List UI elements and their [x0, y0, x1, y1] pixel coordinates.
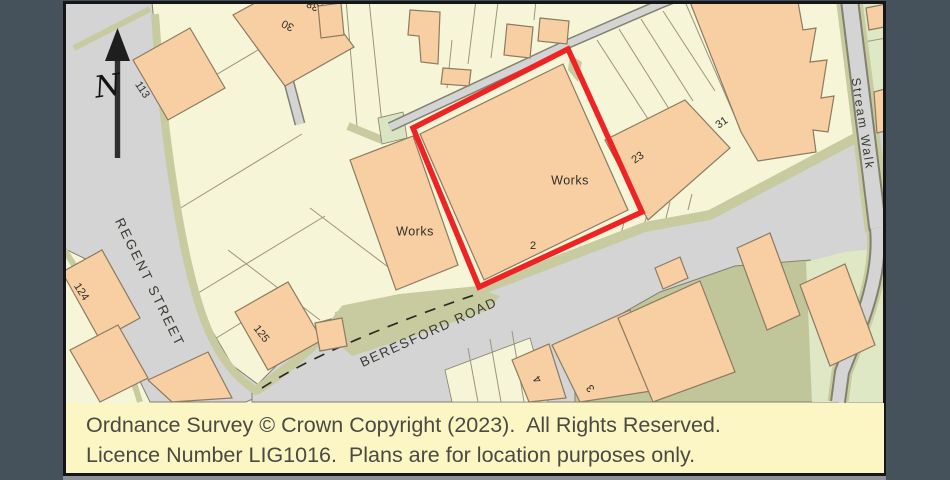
label-site-number: 2: [530, 240, 536, 252]
label-works-left: Works: [396, 224, 434, 238]
label-works-site: Works: [551, 173, 589, 187]
building-top-5: [538, 18, 569, 44]
page: N REGENT STREET BERESFORD ROAD Stream Wa…: [0, 0, 950, 480]
copyright-line-1: Ordnance Survey © Crown Copyright (2023)…: [86, 410, 884, 440]
copyright-notice: Ordnance Survey © Crown Copyright (2023)…: [66, 403, 884, 473]
building-top-1: [318, 3, 344, 38]
copyright-line-2: Licence Number LIG1016. Plans are for lo…: [86, 440, 884, 470]
building-top-3: [441, 68, 471, 86]
building-125-annex: [315, 318, 347, 351]
map-drop-shadow: [63, 476, 886, 480]
building-top-4: [504, 24, 533, 58]
